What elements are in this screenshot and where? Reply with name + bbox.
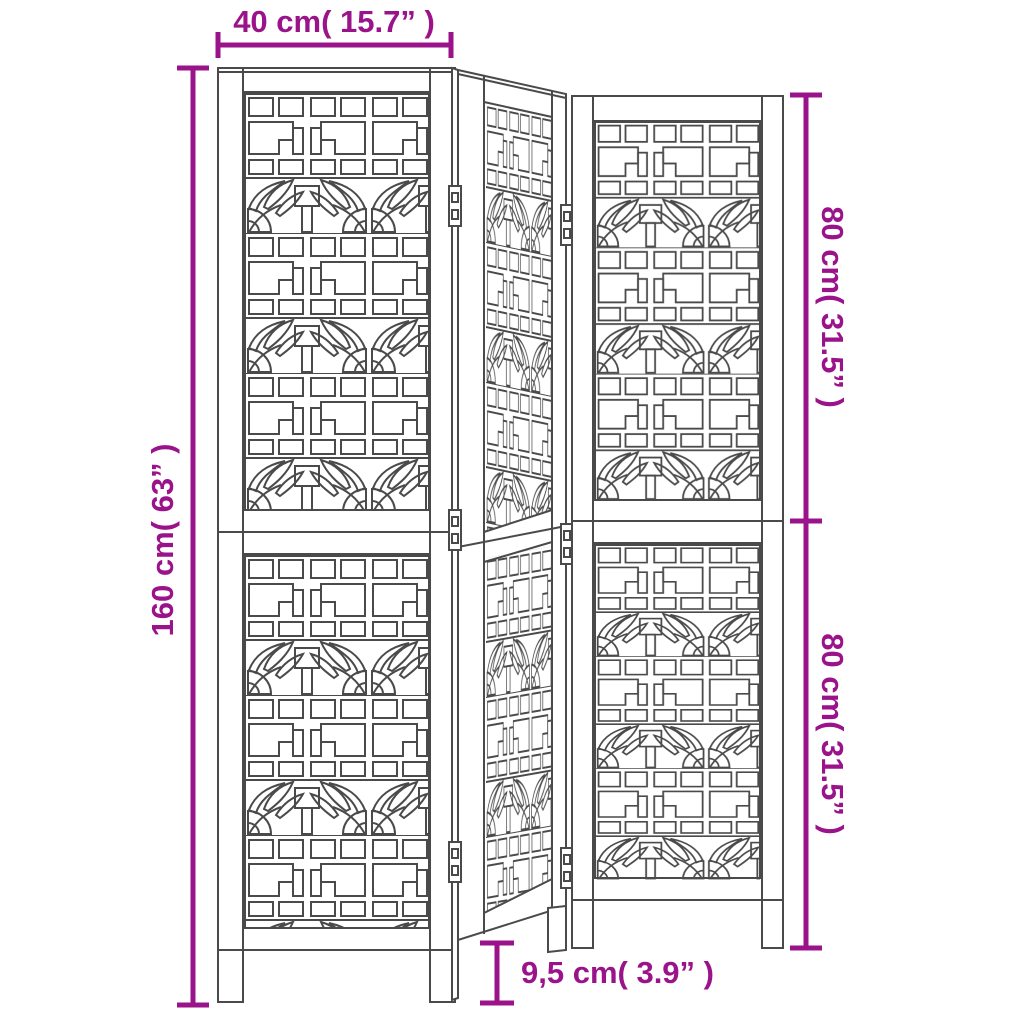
panel-right-legs [572,900,783,948]
section-height-bottom-label: 80 cm( 31.5” ) [814,633,850,835]
panel-width-label: 40 cm( 15.7” ) [233,4,435,40]
total-height-dimension-line [177,68,209,1005]
diagram-canvas: 40 cm( 15.7” ) 160 cm( 63” ) 80 cm( 31.5… [0,0,1024,1024]
panel-left [218,68,455,1002]
leg-height-dimension-line [480,943,514,1003]
leg-height-label: 9,5 cm( 3.9” ) [521,955,714,991]
panel-left-legs [218,950,455,1002]
panel-right [572,96,783,948]
section-height-top-label: 80 cm( 31.5” ) [814,206,850,408]
panel-middle [449,68,573,1000]
total-height-label: 160 cm( 63” ) [145,444,181,637]
